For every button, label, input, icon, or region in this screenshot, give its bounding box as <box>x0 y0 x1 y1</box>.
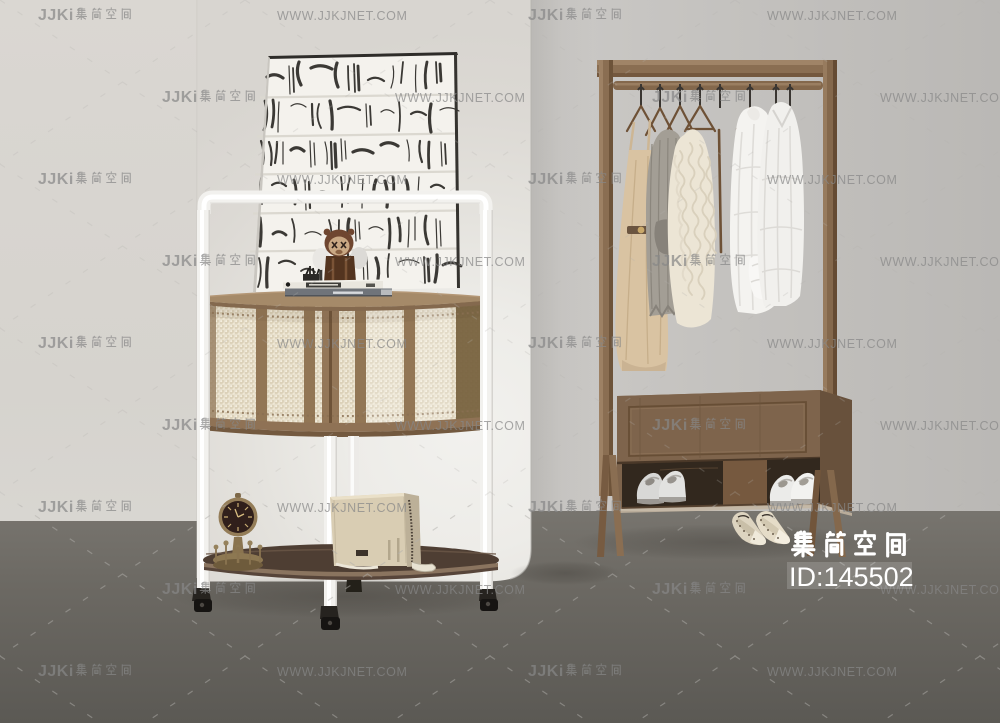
svg-text:ID:145502: ID:145502 <box>789 562 914 592</box>
